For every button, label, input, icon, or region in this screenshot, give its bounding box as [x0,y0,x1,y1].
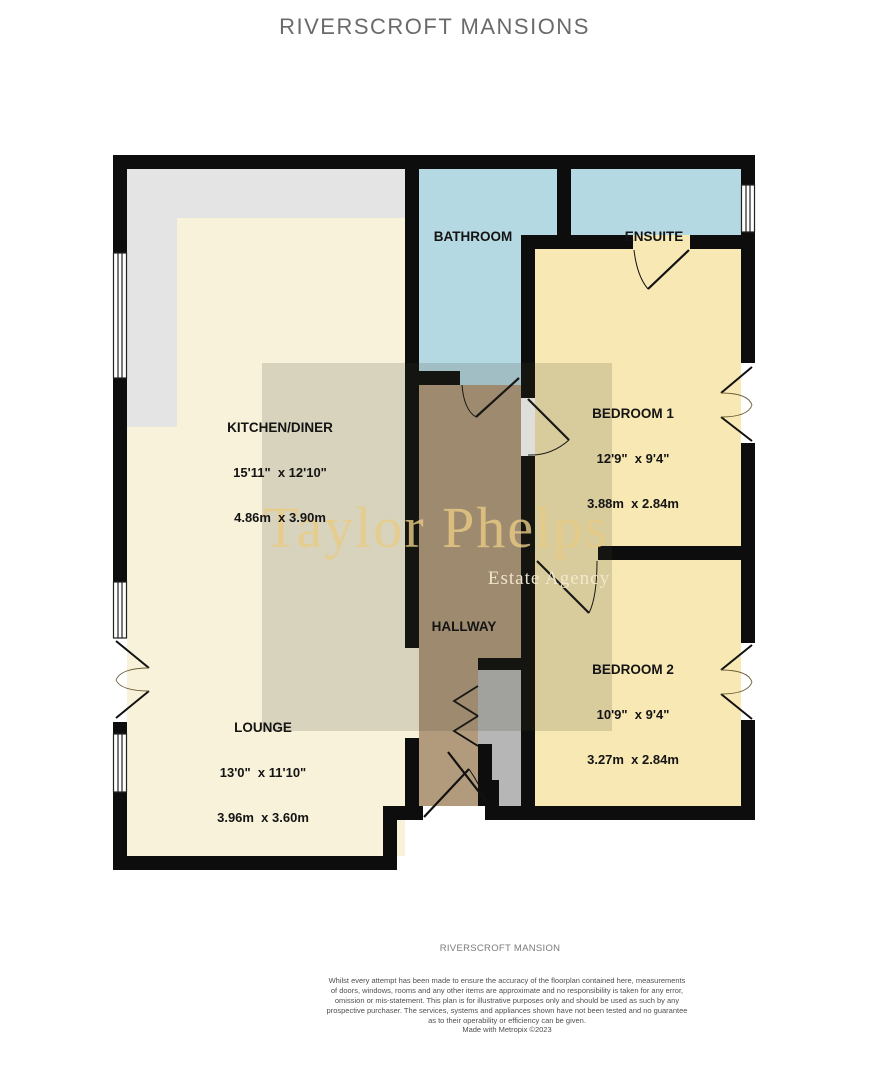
room-label-bedroom1: BEDROOM 1 12'9" x 9'4" 3.88m x 2.84m [587,376,679,541]
room-size-imperial: 13'0" x 11'10" [217,765,309,780]
room-name: KITCHEN/DINER [227,420,333,435]
lounge-hallway-opening-floor [405,648,419,738]
bathroom-doorway-floor [460,371,521,385]
room-label-hallway: HALLWAY [432,589,497,664]
window [114,253,127,378]
room-size-metric: 3.96m x 3.60m [217,810,309,825]
room-size-imperial: 10'9" x 9'4" [587,707,679,722]
room-label-lounge: LOUNGE 13'0" x 11'10" 3.96m x 3.60m [217,690,309,855]
floorplan-page: RIVERSCROFT MANSIONS [0,0,869,1080]
room-label-kitchen-diner: KITCHEN/DINER 15'11" x 12'10" 4.86m x 3.… [227,390,333,555]
room-name: LOUNGE [217,720,309,735]
room-name: HALLWAY [432,619,497,634]
window [114,582,127,638]
watermark-subtitle: Estate Agency [488,568,610,590]
room-size-imperial: 15'11" x 12'10" [227,465,333,480]
room-size-metric: 3.88m x 2.84m [587,496,679,511]
room-name: BEDROOM 2 [587,662,679,677]
room-label-ensuite: ENSUITE [625,199,684,274]
room-name: BEDROOM 1 [587,406,679,421]
room-name: ENSUITE [625,229,684,244]
room-size-imperial: 12'9" x 9'4" [587,451,679,466]
window [114,734,127,792]
room-size-metric: 3.27m x 2.84m [587,752,679,767]
room-size-metric: 4.86m x 3.90m [227,510,333,525]
window [742,185,755,232]
room-label-bedroom2: BEDROOM 2 10'9" x 9'4" 3.27m x 2.84m [587,632,679,797]
room-name: BATHROOM [434,229,513,244]
room-label-storage: STORAGE [484,735,522,749]
room-label-bathroom: BATHROOM [434,199,513,274]
kitchen-counter-left [127,169,177,427]
